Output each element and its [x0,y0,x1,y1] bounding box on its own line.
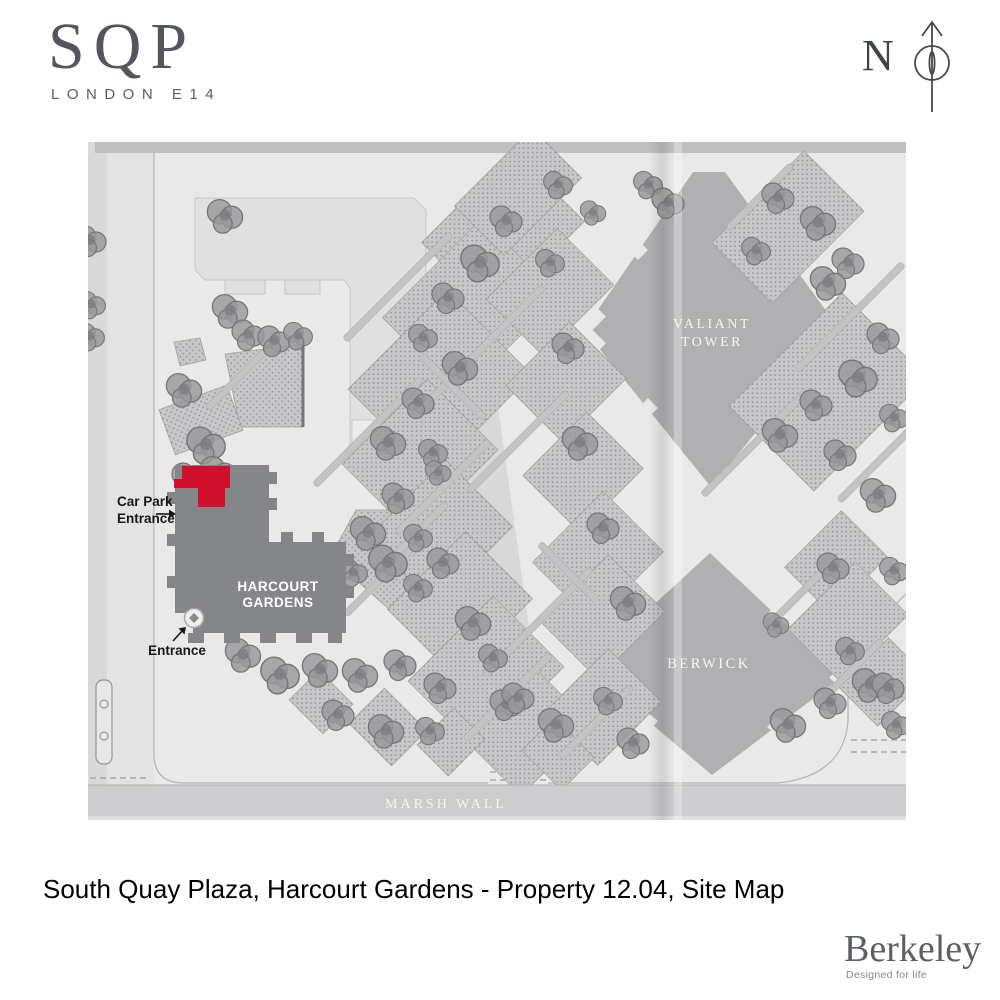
top-road [95,142,906,153]
page-fold-shadow [648,142,674,820]
compass-north-icon [903,12,961,120]
pier [96,680,112,764]
north-label: N [862,30,894,81]
page-fold-light [674,142,682,820]
valiant-tower-label-2: TOWER [681,335,743,350]
left-road-verge [107,142,154,820]
brochure-page: SQP LONDON E14 N [0,0,1000,1000]
marsh-wall-label: MARSH WALL [385,797,507,812]
harcourt-gardens-label: HARCOURT [237,579,318,594]
car-park-entrance-label: Car Park [117,494,173,509]
berkeley-tagline: Designed for life [846,969,981,981]
entrance-label: Entrance [148,643,206,658]
page-title: South Quay Plaza, Harcourt Gardens - Pro… [43,874,784,905]
berkeley-logo: Berkeley Designed for life [844,930,981,981]
valiant-tower-label: VALIANT [673,317,751,332]
berkeley-logo-text: Berkeley [844,930,981,968]
sqp-logo-subtext: LONDON E14 [51,86,221,103]
marsh-wall-road: MARSH WALL [88,785,906,820]
sqp-logo-text: SQP [48,14,221,80]
site-map: VALIANT TOWER BERWICK [88,142,906,820]
harcourt-gardens-label-2: GARDENS [242,595,313,610]
sqp-logo: SQP LONDON E14 [48,14,221,103]
